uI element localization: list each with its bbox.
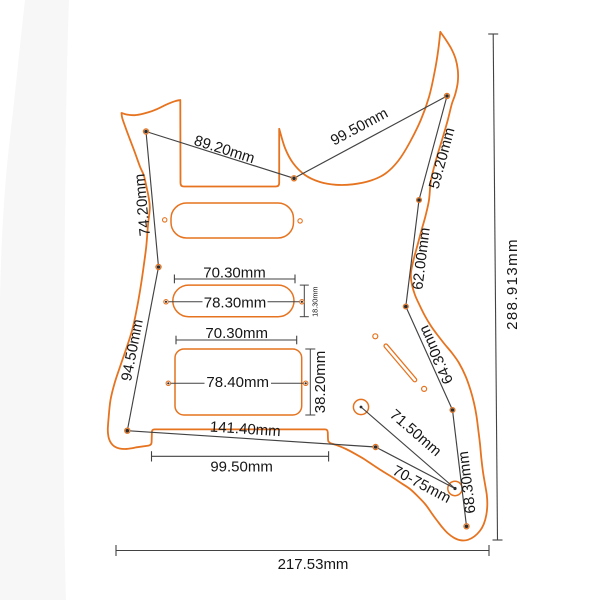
svg-text:38.20mm: 38.20mm xyxy=(312,351,329,414)
svg-text:99.50mm: 99.50mm xyxy=(210,458,273,475)
svg-text:217.53mm: 217.53mm xyxy=(278,556,349,573)
svg-text:288.913mm: 288.913mm xyxy=(504,238,521,330)
svg-text:18.30mm: 18.30mm xyxy=(311,286,320,316)
svg-text:70.30mm: 70.30mm xyxy=(205,325,268,342)
svg-text:78.30mm: 78.30mm xyxy=(204,294,267,311)
svg-text:70.30mm: 70.30mm xyxy=(203,264,266,281)
svg-text:78.40mm: 78.40mm xyxy=(206,374,269,391)
